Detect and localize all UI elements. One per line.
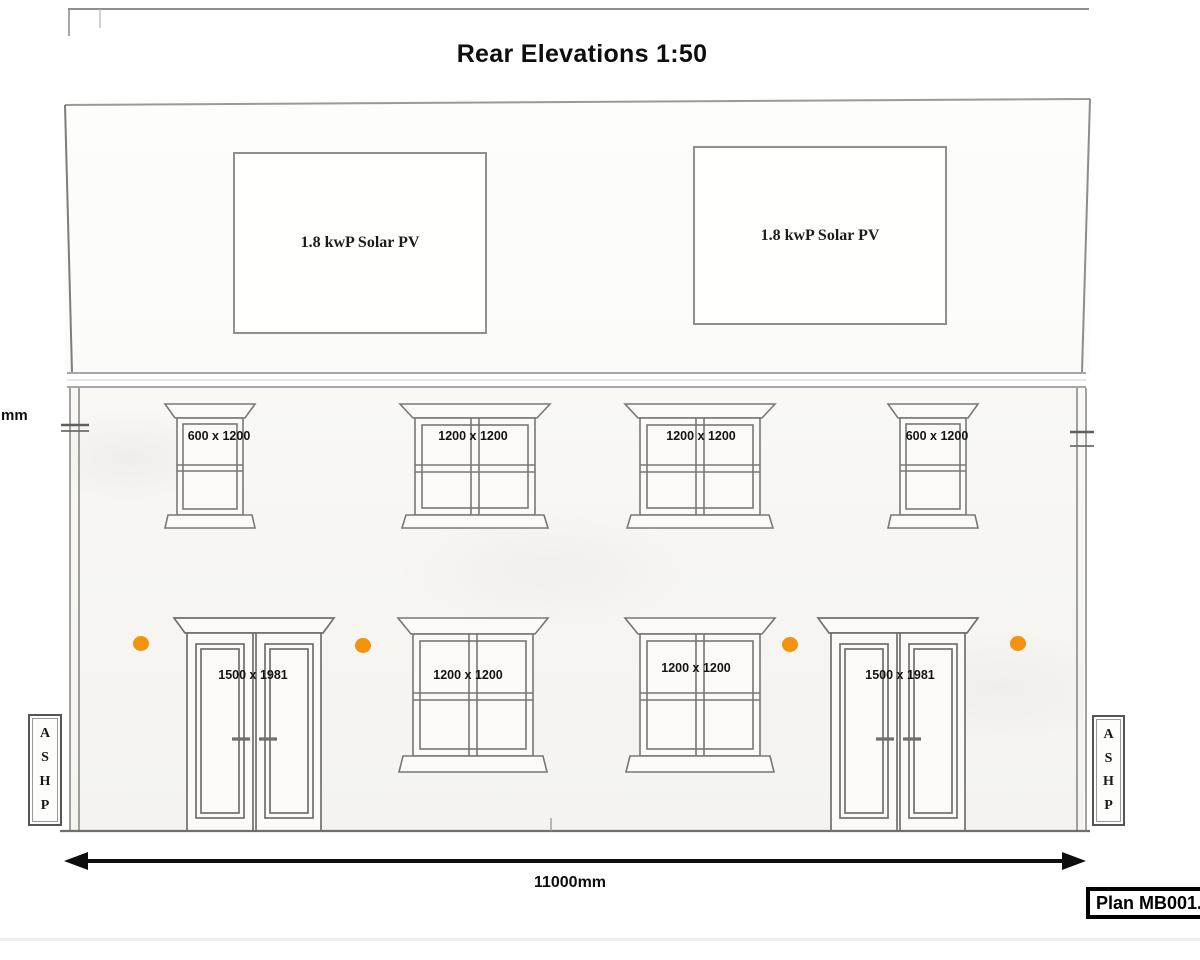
elevation-drawing bbox=[0, 0, 1200, 960]
ashp-right-box: A S H P bbox=[1092, 715, 1125, 826]
scanned-plan-sheet: { "page": { "title": "Rear Elevations 1:… bbox=[0, 0, 1200, 960]
overall-width-dimension: 11000mm bbox=[500, 874, 640, 892]
rear-door-right bbox=[818, 618, 978, 831]
left-edge-dimension-partial: mm bbox=[1, 407, 28, 424]
upper-window-1-dimension: 600 x 1200 bbox=[188, 429, 251, 443]
rear-door-left bbox=[174, 618, 334, 831]
vent-marker-dot-4 bbox=[1010, 636, 1026, 651]
upper-window-3 bbox=[625, 404, 775, 528]
downpipe-left bbox=[61, 388, 89, 831]
solar-panel-1-label: 1.8 kwP Solar PV bbox=[301, 234, 420, 252]
ashp-left-box: A S H P bbox=[28, 714, 62, 826]
upper-window-1 bbox=[165, 404, 255, 528]
door-left-dimension: 1500 x 1981 bbox=[218, 668, 288, 682]
vent-marker-dot-3 bbox=[782, 637, 798, 652]
eaves-lines bbox=[67, 373, 1086, 387]
ashp-letter: A bbox=[1103, 727, 1113, 743]
upper-window-4 bbox=[888, 404, 978, 528]
plan-reference-label: Plan MB001. bbox=[1096, 893, 1200, 914]
ashp-letter: P bbox=[41, 798, 50, 814]
ashp-letter: S bbox=[41, 750, 49, 766]
upper-window-2 bbox=[400, 404, 550, 528]
sheet-border bbox=[68, 9, 1089, 36]
lower-window-2-dimension: 1200 x 1200 bbox=[661, 661, 731, 675]
ashp-letter: A bbox=[40, 726, 50, 742]
ashp-letter: H bbox=[1103, 774, 1114, 790]
door-right-dimension: 1500 x 1981 bbox=[865, 668, 935, 682]
plan-reference-box: Plan MB001. bbox=[1086, 887, 1200, 919]
lower-window-1-dimension: 1200 x 1200 bbox=[433, 668, 503, 682]
upper-window-3-dimension: 1200 x 1200 bbox=[666, 429, 736, 443]
vent-marker-dot-1 bbox=[133, 636, 149, 651]
solar-panel-2: 1.8 kwP Solar PV bbox=[693, 146, 947, 325]
ashp-letter: P bbox=[1104, 798, 1113, 814]
upper-window-4-dimension: 600 x 1200 bbox=[906, 429, 969, 443]
solar-panel-2-label: 1.8 kwP Solar PV bbox=[761, 227, 880, 245]
ashp-letter: H bbox=[40, 774, 51, 790]
ashp-letter: S bbox=[1105, 751, 1113, 767]
downpipe-right bbox=[1070, 388, 1094, 831]
vent-marker-dot-2 bbox=[355, 638, 371, 653]
page-title: Rear Elevations 1:50 bbox=[0, 40, 1164, 69]
solar-panel-1: 1.8 kwP Solar PV bbox=[233, 152, 487, 334]
dimension-arrow bbox=[64, 852, 1086, 870]
lower-window-1 bbox=[398, 618, 548, 772]
upper-window-2-dimension: 1200 x 1200 bbox=[438, 429, 508, 443]
lower-window-2 bbox=[625, 618, 775, 772]
